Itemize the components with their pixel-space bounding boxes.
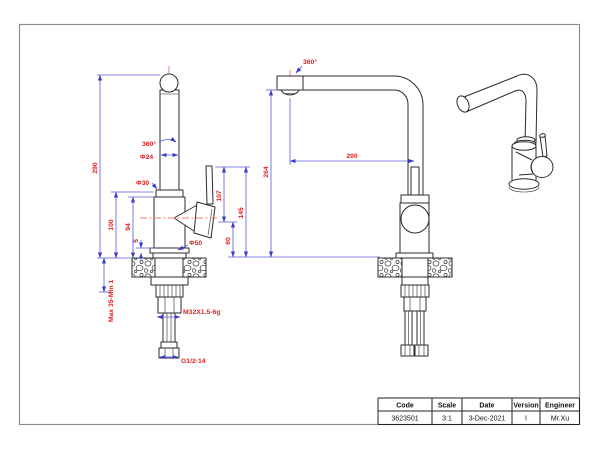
dim-body-height: 94 xyxy=(125,223,132,231)
dim-pipe-dia: Φ24 xyxy=(140,154,153,161)
dim-handle-top-height: 145 xyxy=(238,207,245,219)
cad-drawing: 290 100 94 5 360° Φ24 Φ30 Φ50 107 60 145… xyxy=(0,0,600,450)
title-value-date: 3-Dec-2021 xyxy=(469,416,506,423)
title-header-date: Date xyxy=(479,403,494,410)
dim-base-dia: Φ50 xyxy=(189,240,202,247)
side-faucet-outline xyxy=(277,76,452,356)
title-header-engineer: Engineer xyxy=(545,403,575,410)
dim-center-height: 60 xyxy=(225,237,232,245)
title-value-code: 3623501 xyxy=(391,416,418,423)
dim-mount-thickness: Max 35-Min 1 xyxy=(108,280,115,323)
dim-body-top-height: 100 xyxy=(108,219,115,231)
title-value-scale: 3:1 xyxy=(442,416,452,423)
dim-shank-thread: M32X1.5-6g xyxy=(183,309,220,316)
drawing-sheet: 290 100 94 5 360° Φ24 Φ30 Φ50 107 60 145… xyxy=(0,0,600,450)
dim-front-swivel: 360° xyxy=(142,140,156,148)
dim-total-height: 290 xyxy=(92,162,99,174)
side-view: 360° 200 264 xyxy=(263,58,452,356)
dim-spout-reach: 200 xyxy=(346,153,358,160)
dim-hose-thread: G1/2-14 xyxy=(181,358,206,365)
title-value-engineer: Mr.Xu xyxy=(551,416,569,423)
dim-spout-height: 264 xyxy=(263,166,270,178)
title-header-version: Version xyxy=(513,403,538,410)
front-view: 290 100 94 5 360° Φ24 Φ30 Φ50 107 60 145… xyxy=(92,66,380,365)
title-header-scale: Scale xyxy=(438,403,456,410)
title-block: Code Scale Date Version Engineer 3623501… xyxy=(378,398,580,425)
dim-side-swivel: 360° xyxy=(303,58,317,66)
title-value-version: I xyxy=(525,416,527,423)
title-header-code: Code xyxy=(396,403,414,410)
dim-neck-dia: Φ30 xyxy=(136,180,149,187)
isometric-view xyxy=(455,74,553,192)
dim-handle-top-to-center: 107 xyxy=(216,190,223,202)
dim-flange-height: 5 xyxy=(133,239,140,243)
